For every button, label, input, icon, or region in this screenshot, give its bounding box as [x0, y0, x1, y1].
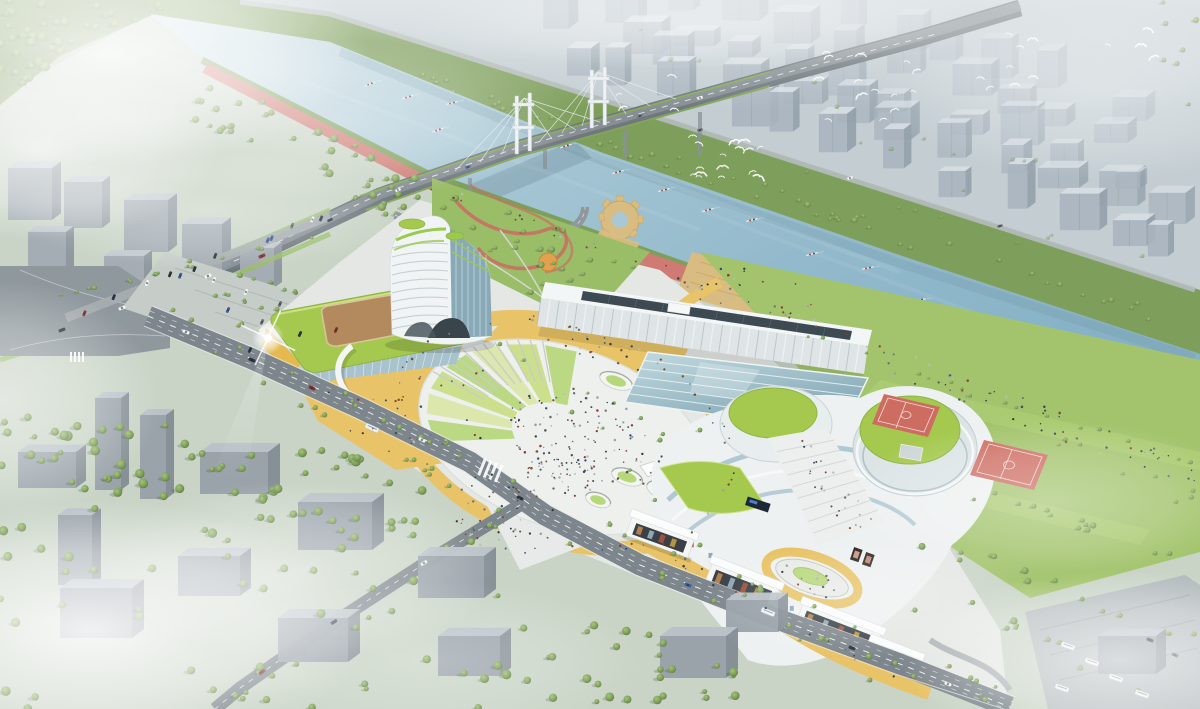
person [593, 465, 595, 467]
person [577, 459, 579, 461]
person [712, 422, 714, 424]
person [411, 358, 414, 361]
tree [1015, 406, 1018, 409]
person [505, 548, 507, 550]
tree [859, 141, 862, 144]
person [823, 489, 825, 491]
tree [161, 472, 170, 481]
person [620, 349, 622, 351]
tree [581, 272, 585, 276]
person [598, 346, 600, 348]
person [1058, 416, 1059, 417]
tree [703, 695, 709, 701]
person [625, 450, 627, 452]
person [575, 327, 577, 329]
person [568, 326, 570, 328]
tree [299, 403, 304, 408]
person [549, 416, 552, 419]
tree [318, 447, 325, 454]
person [830, 505, 832, 507]
tree [92, 285, 97, 290]
tree [548, 246, 555, 253]
person [524, 451, 527, 454]
tree [639, 416, 643, 420]
person [529, 318, 531, 320]
person [588, 247, 590, 249]
tree [897, 206, 901, 210]
tree [650, 152, 655, 157]
person [585, 397, 588, 400]
person [687, 276, 689, 278]
person [564, 492, 566, 494]
tree [516, 239, 520, 243]
tree [731, 691, 740, 700]
person [516, 490, 518, 492]
person [836, 514, 838, 516]
person [622, 421, 624, 423]
person [635, 260, 637, 262]
person [579, 424, 581, 426]
person [538, 463, 540, 465]
person [544, 429, 547, 432]
person [519, 530, 521, 532]
tree [678, 171, 681, 174]
tree [428, 472, 432, 476]
tree [732, 177, 735, 180]
person [810, 470, 812, 472]
person [552, 399, 554, 401]
person [584, 449, 586, 451]
tree [507, 210, 512, 215]
person [350, 430, 351, 431]
person [694, 393, 697, 396]
person [515, 488, 517, 490]
person [555, 443, 557, 445]
person [821, 485, 823, 487]
tree [354, 404, 358, 408]
person [849, 527, 851, 529]
person [566, 462, 568, 464]
person [589, 351, 591, 353]
person [460, 200, 462, 202]
top-haze [0, 0, 1200, 110]
tree [291, 371, 295, 375]
tree [283, 288, 287, 292]
tree [660, 571, 666, 577]
person [662, 543, 664, 545]
tree [354, 454, 361, 461]
person [642, 482, 644, 484]
tree [698, 543, 703, 548]
person [572, 339, 574, 341]
person [571, 545, 573, 547]
person [427, 340, 429, 342]
person [467, 502, 469, 504]
person [592, 480, 594, 482]
person [715, 283, 717, 285]
person [543, 447, 545, 449]
person [552, 509, 554, 511]
person [692, 290, 694, 292]
person [461, 193, 464, 196]
person [938, 381, 940, 383]
person [578, 329, 580, 331]
person [531, 319, 534, 322]
person [541, 402, 543, 404]
person [503, 522, 505, 524]
person [1012, 418, 1014, 420]
tree [629, 154, 634, 159]
tree [494, 525, 498, 529]
person [402, 366, 404, 368]
person [1058, 412, 1061, 415]
tree [430, 466, 435, 471]
person [534, 424, 537, 427]
person [558, 476, 560, 478]
person [552, 487, 554, 489]
tree [998, 258, 1002, 262]
person [567, 486, 568, 487]
person [660, 358, 662, 360]
person [739, 284, 741, 286]
tree [561, 267, 566, 272]
tree [797, 198, 801, 202]
person [512, 407, 514, 409]
person [601, 480, 603, 482]
person [539, 423, 541, 425]
tree [665, 164, 669, 168]
person [501, 505, 503, 507]
person [562, 481, 563, 482]
person [615, 418, 617, 420]
tree [1046, 281, 1050, 285]
person [611, 480, 614, 483]
person [781, 306, 783, 308]
tree [1030, 271, 1035, 276]
tree [513, 245, 518, 250]
tree [397, 424, 402, 429]
fog-patch [10, 150, 410, 270]
person [547, 537, 549, 539]
tree [188, 453, 195, 460]
person [536, 495, 538, 497]
person [769, 312, 771, 314]
person [419, 376, 421, 378]
person [893, 675, 895, 677]
tree [214, 351, 217, 354]
tree [710, 182, 713, 185]
person [1044, 410, 1046, 412]
person [748, 301, 750, 303]
person [518, 491, 520, 493]
tree [1130, 306, 1134, 310]
person [724, 442, 726, 444]
person [580, 348, 582, 350]
person [686, 286, 688, 288]
tree [1046, 236, 1049, 239]
person [879, 345, 881, 347]
person [579, 353, 581, 355]
person [411, 443, 412, 444]
person [453, 197, 455, 199]
tree [948, 241, 953, 246]
tree [1046, 414, 1049, 417]
person [883, 352, 885, 354]
tree [660, 575, 665, 580]
person [528, 467, 530, 469]
tree [646, 632, 653, 639]
tower-roof-garden [446, 232, 464, 240]
person [479, 437, 481, 439]
person [551, 475, 553, 477]
tree [614, 145, 619, 150]
person [626, 471, 629, 474]
tree [224, 292, 227, 295]
person [372, 399, 374, 401]
tree [928, 377, 930, 379]
block-side [1099, 188, 1107, 230]
tree [471, 225, 477, 231]
tree [755, 195, 759, 199]
tree [598, 141, 603, 146]
person [815, 461, 817, 463]
person [614, 439, 617, 442]
person [622, 429, 624, 431]
person [803, 446, 805, 448]
person [650, 472, 652, 474]
person [471, 485, 473, 487]
person [584, 456, 586, 458]
person [328, 392, 330, 394]
person [440, 384, 442, 386]
tree [657, 652, 662, 657]
tree [238, 345, 242, 349]
person [555, 397, 557, 399]
person [631, 543, 633, 545]
tree [660, 639, 667, 646]
person [887, 362, 889, 364]
person [729, 296, 732, 299]
person [518, 420, 520, 422]
person [413, 441, 416, 444]
person [593, 460, 595, 462]
person [568, 489, 569, 490]
person [406, 361, 408, 363]
tree [569, 278, 574, 283]
person [573, 457, 574, 458]
person [847, 493, 849, 495]
person [665, 265, 667, 267]
person [552, 473, 553, 474]
person [707, 512, 710, 515]
person [573, 425, 575, 427]
person [474, 434, 476, 436]
person [625, 355, 627, 357]
fog-patch [700, 540, 1060, 660]
person [526, 494, 528, 496]
person [657, 362, 659, 364]
person [547, 339, 549, 341]
person [527, 476, 529, 478]
person [519, 402, 521, 404]
tree [552, 261, 556, 265]
tree [303, 470, 309, 476]
person [461, 489, 463, 491]
person [636, 458, 638, 460]
person [590, 466, 592, 468]
person [555, 227, 557, 229]
tree [561, 228, 566, 233]
tree [528, 289, 534, 295]
person [691, 531, 693, 533]
person [635, 459, 637, 461]
person [539, 445, 542, 448]
person [515, 536, 517, 538]
person [540, 509, 542, 511]
person [488, 479, 490, 481]
person [638, 348, 640, 350]
person [512, 486, 514, 488]
person [502, 516, 504, 518]
person [913, 381, 915, 383]
tree [298, 448, 307, 457]
tree [815, 213, 818, 216]
person [928, 363, 930, 365]
person [492, 491, 494, 493]
block-front [1148, 225, 1168, 257]
person [663, 368, 665, 370]
person [727, 274, 730, 277]
person [965, 395, 967, 397]
person [810, 445, 812, 447]
person [488, 496, 490, 498]
person [619, 545, 621, 547]
person [451, 380, 453, 382]
person [402, 396, 404, 398]
person [952, 379, 953, 380]
person [567, 419, 569, 421]
tree [493, 246, 497, 250]
person [556, 414, 558, 416]
person [486, 529, 487, 530]
person [497, 531, 499, 533]
person [518, 498, 520, 500]
person [565, 345, 567, 347]
person [945, 384, 946, 385]
tree [899, 242, 903, 246]
person [675, 560, 677, 562]
person [395, 432, 397, 434]
person [542, 466, 544, 468]
tree [969, 394, 972, 397]
person [630, 438, 632, 440]
tree [382, 418, 387, 423]
person [534, 548, 535, 549]
person [813, 319, 815, 321]
person [595, 247, 596, 248]
person [521, 505, 523, 507]
person [733, 278, 735, 280]
person [560, 473, 562, 475]
person [564, 436, 566, 438]
person [362, 432, 364, 434]
person [617, 361, 619, 363]
tree [653, 696, 662, 705]
person [587, 421, 589, 423]
person [576, 462, 577, 463]
person [733, 472, 735, 474]
tree [1082, 293, 1085, 296]
person [445, 439, 447, 441]
tree [609, 140, 613, 144]
person [561, 464, 563, 466]
person [530, 491, 532, 493]
person [958, 398, 960, 400]
person [860, 526, 862, 528]
tree [76, 290, 79, 293]
person [701, 285, 703, 287]
person [540, 461, 542, 463]
person [832, 471, 834, 473]
person [528, 395, 530, 397]
person [586, 455, 589, 458]
person [728, 437, 730, 439]
tree [889, 147, 894, 152]
person [537, 457, 539, 459]
tree [227, 293, 231, 297]
tree [588, 257, 593, 262]
person [529, 532, 531, 534]
tree [568, 541, 573, 546]
person [482, 370, 484, 372]
person [573, 392, 575, 394]
person [809, 473, 811, 475]
tree [1109, 297, 1114, 302]
person [533, 489, 535, 491]
tree [698, 428, 703, 433]
person [629, 434, 631, 436]
tree [252, 277, 256, 281]
person [569, 448, 571, 450]
person [574, 473, 575, 474]
tree [821, 336, 825, 340]
person [568, 446, 570, 448]
person [572, 441, 574, 443]
tree [405, 458, 409, 462]
person [619, 426, 621, 428]
tree [181, 440, 189, 448]
person [584, 459, 586, 461]
person [721, 422, 723, 424]
person [515, 219, 517, 221]
person [475, 372, 477, 374]
tree [781, 189, 784, 192]
person [801, 440, 803, 442]
tree [209, 466, 215, 472]
person [689, 383, 691, 385]
city-block [939, 166, 972, 197]
person [394, 400, 396, 402]
person [795, 283, 797, 285]
block-side [847, 107, 856, 152]
person [533, 315, 535, 317]
person [519, 214, 521, 216]
person [631, 345, 633, 347]
person [699, 286, 701, 288]
person [404, 415, 405, 416]
tree [962, 189, 965, 192]
person [556, 459, 557, 460]
